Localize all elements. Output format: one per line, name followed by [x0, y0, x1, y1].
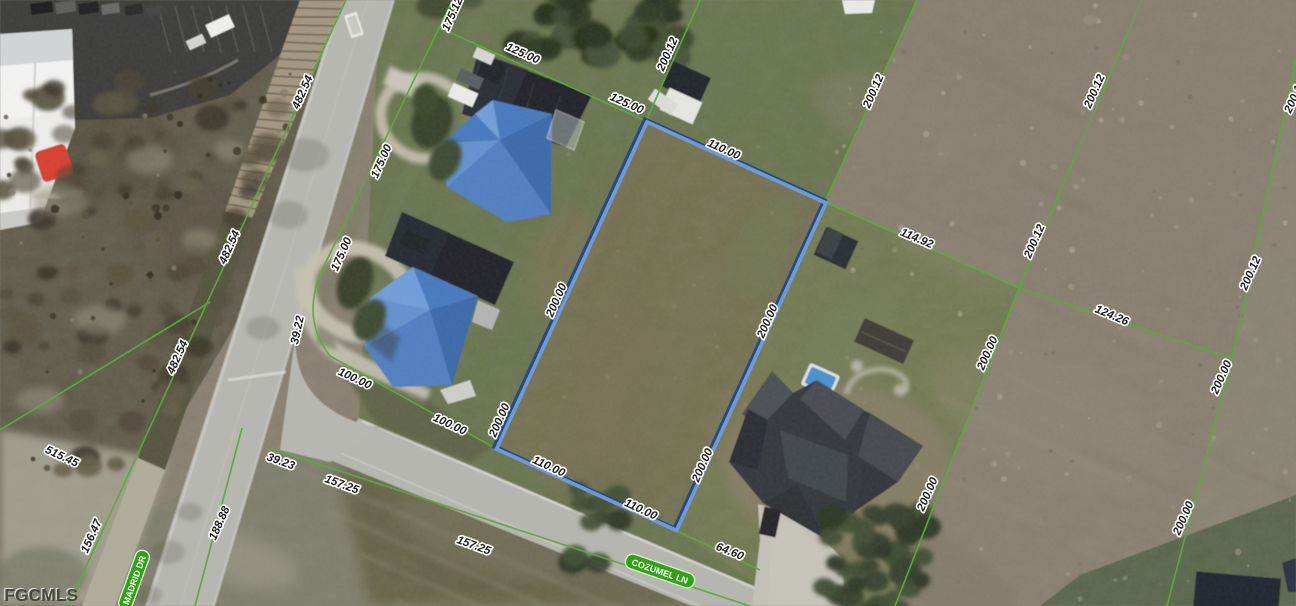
- svg-text:FGCMLS: FGCMLS: [4, 585, 78, 605]
